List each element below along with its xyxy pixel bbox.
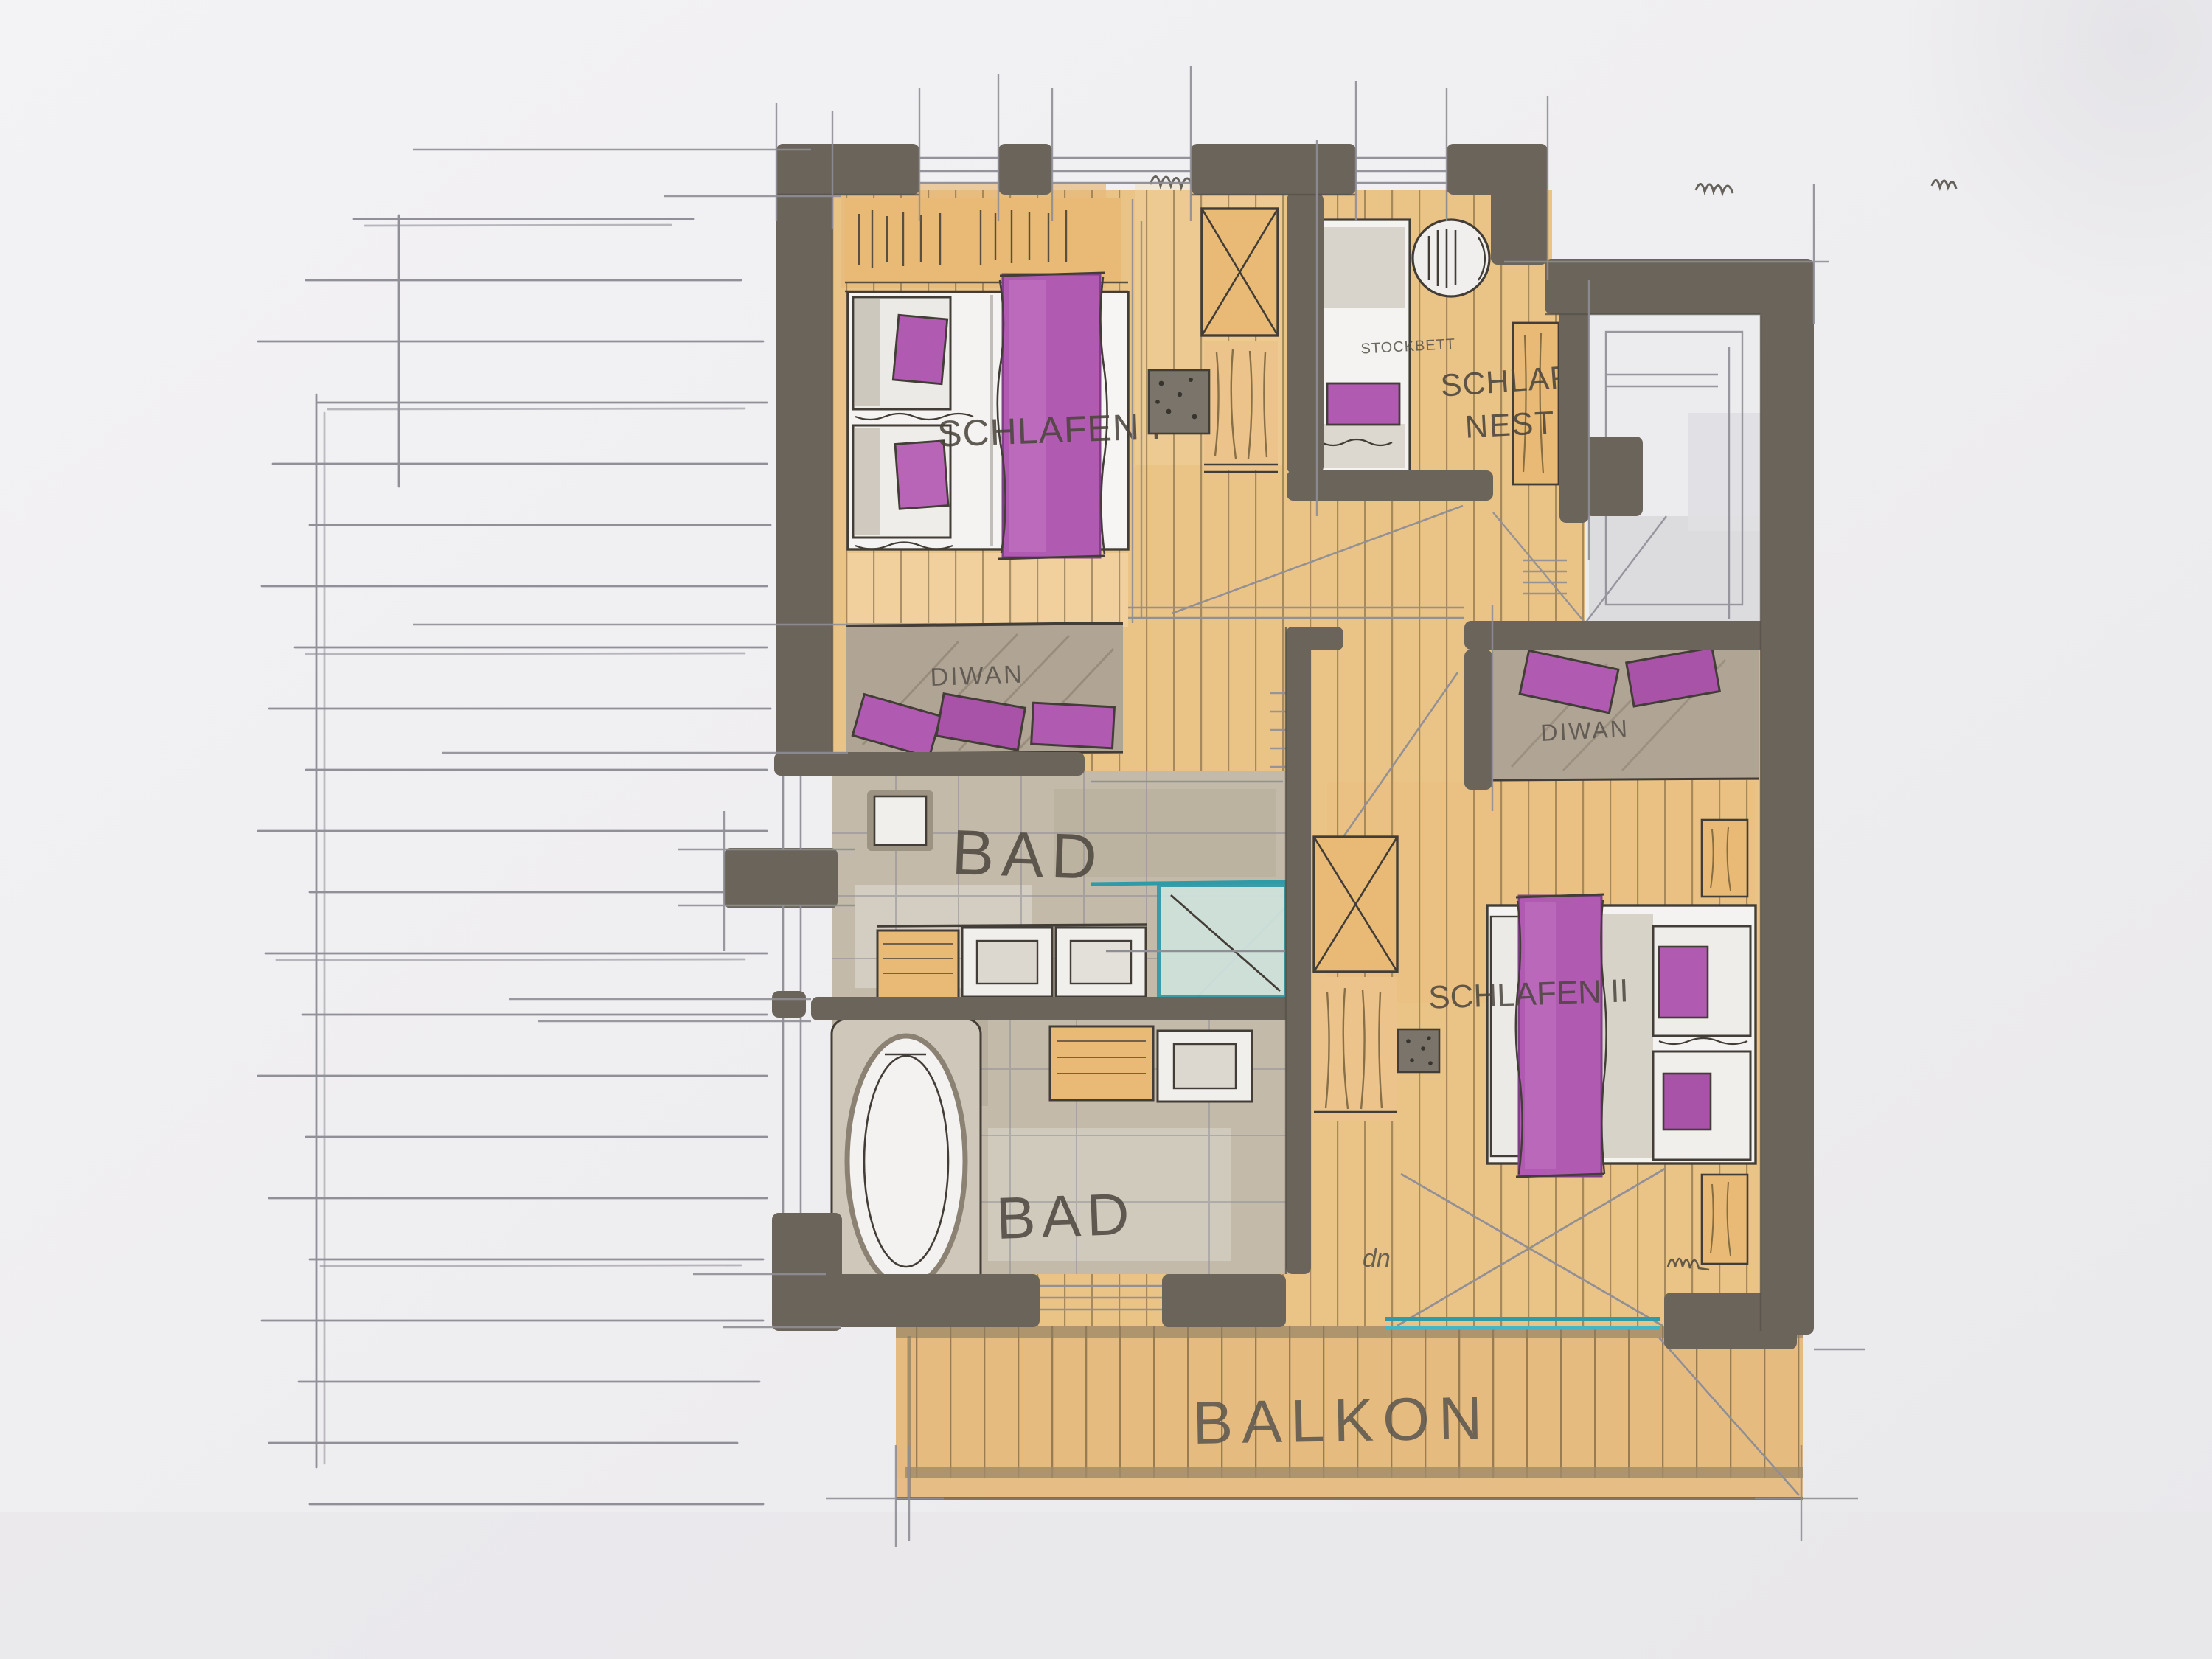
svg-text:DIWAN: DIWAN (930, 661, 1024, 692)
svg-text:DIWAN: DIWAN (1540, 715, 1630, 746)
svg-text:SCHLAFEN I: SCHLAFEN I (936, 406, 1162, 455)
svg-text:BAD: BAD (995, 1180, 1135, 1251)
svg-text:BALKON: BALKON (1192, 1385, 1492, 1457)
svg-text:SCHLAFEN II: SCHLAFEN II (1427, 973, 1629, 1015)
svg-text:dn: dn (1363, 1245, 1391, 1273)
svg-text:BAD: BAD (950, 817, 1105, 893)
svg-text:NEST: NEST (1464, 405, 1557, 445)
